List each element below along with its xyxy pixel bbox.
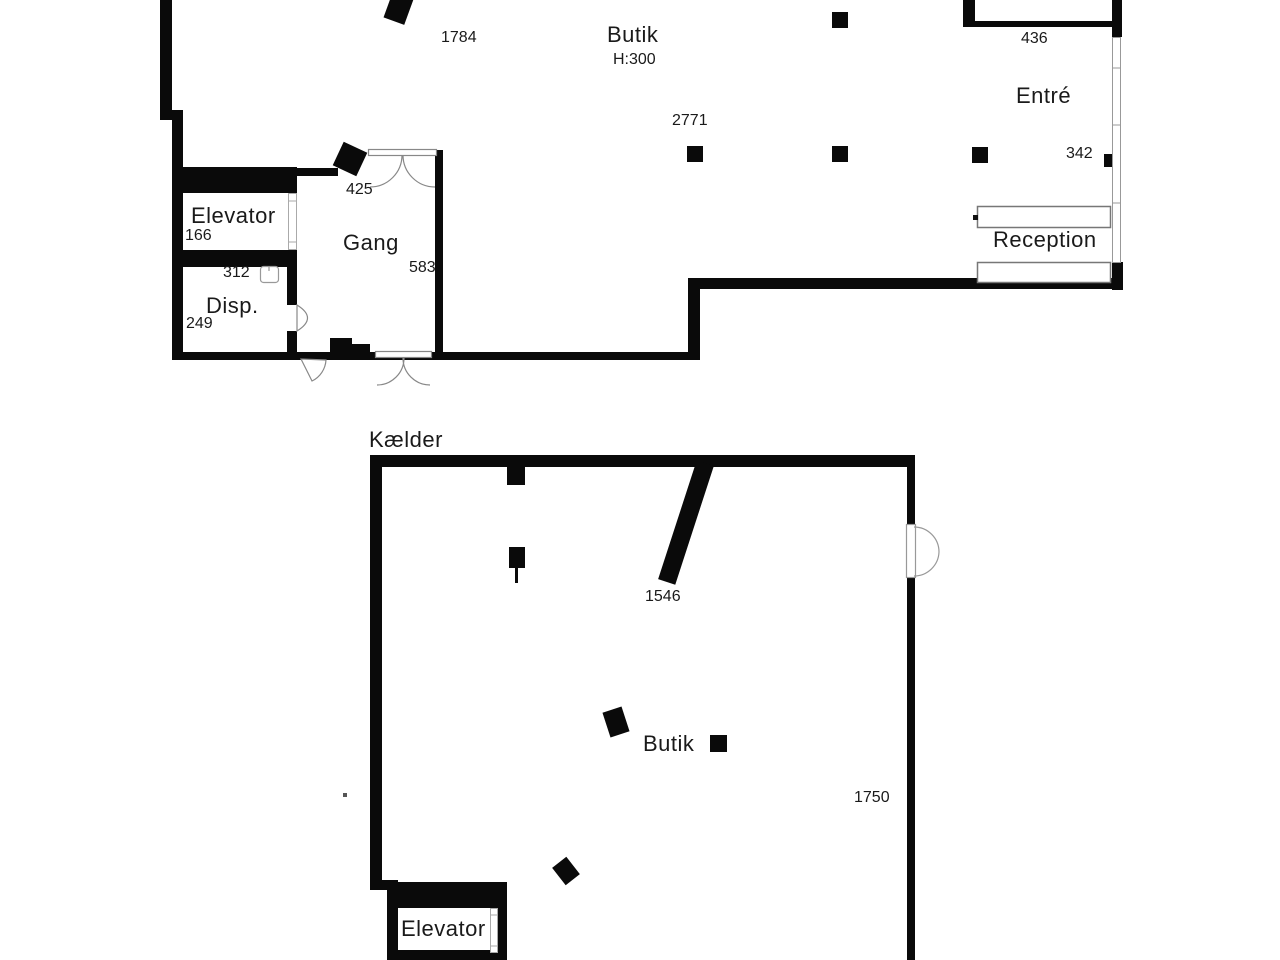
room-label-gang: Gang bbox=[343, 232, 399, 254]
dim-249: 249 bbox=[186, 316, 213, 332]
bottom-single-door bbox=[301, 359, 326, 381]
dim-436: 436 bbox=[1021, 31, 1048, 47]
room-label-disp: Disp. bbox=[206, 295, 259, 317]
dim-1546: 1546 bbox=[645, 589, 681, 605]
sink-fixture bbox=[261, 266, 279, 283]
room-label-reception: Reception bbox=[993, 229, 1097, 251]
basement-side-double-door bbox=[907, 525, 940, 578]
dim-312: 312 bbox=[223, 265, 250, 281]
entre-window-wall bbox=[1112, 38, 1121, 263]
floor-plan-canvas: 1784 Butik H:300 2771 436 Entré 342 Rece… bbox=[0, 0, 1280, 960]
room-height-note: H:300 bbox=[613, 52, 656, 68]
doors-windows-overlay bbox=[0, 0, 1280, 960]
disp-door bbox=[297, 305, 308, 331]
dim-166: 166 bbox=[185, 228, 212, 244]
elevator-door bbox=[288, 194, 297, 250]
gang-bottom-double-door bbox=[376, 352, 432, 386]
room-label-butik: Butik bbox=[607, 24, 658, 46]
room-label-butik-basement: Butik bbox=[643, 733, 694, 755]
dim-1750: 1750 bbox=[854, 790, 890, 806]
dim-425: 425 bbox=[346, 182, 373, 198]
basement-title: Kælder bbox=[369, 429, 443, 451]
dim-583: 583 bbox=[409, 260, 436, 276]
dim-342: 342 bbox=[1066, 146, 1093, 162]
basement-elevator-door bbox=[490, 909, 498, 953]
room-label-elevator: Elevator bbox=[191, 205, 276, 227]
room-label-entre: Entré bbox=[1016, 85, 1071, 107]
room-label-elevator-basement: Elevator bbox=[401, 918, 486, 940]
dim-2771: 2771 bbox=[672, 113, 708, 129]
gang-top-double-door bbox=[369, 150, 437, 188]
dim-1784: 1784 bbox=[441, 30, 477, 46]
